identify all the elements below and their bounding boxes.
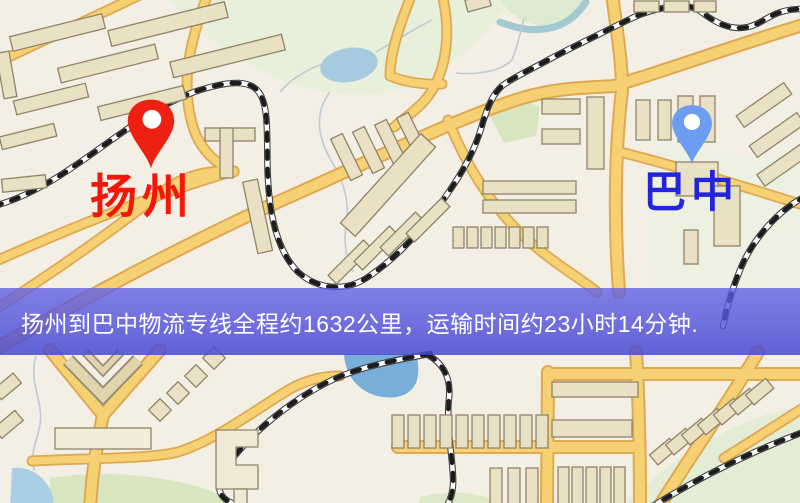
origin-city-label: 扬州: [90, 174, 194, 221]
logistics-route-map-image: 扬州 巴中 扬州到巴中物流专线全程约1632公里，运输时间约23小时14分钟.: [0, 0, 800, 503]
map-background: [0, 0, 800, 503]
destination-city-label: 巴中: [643, 172, 739, 215]
route-info-text: 扬州到巴中物流专线全程约1632公里，运输时间约23小时14分钟.: [0, 305, 698, 339]
route-info-banner: 扬州到巴中物流专线全程约1632公里，运输时间约23小时14分钟.: [0, 288, 800, 355]
origin-pin-icon: [124, 97, 178, 172]
destination-pin-icon: [669, 102, 715, 168]
